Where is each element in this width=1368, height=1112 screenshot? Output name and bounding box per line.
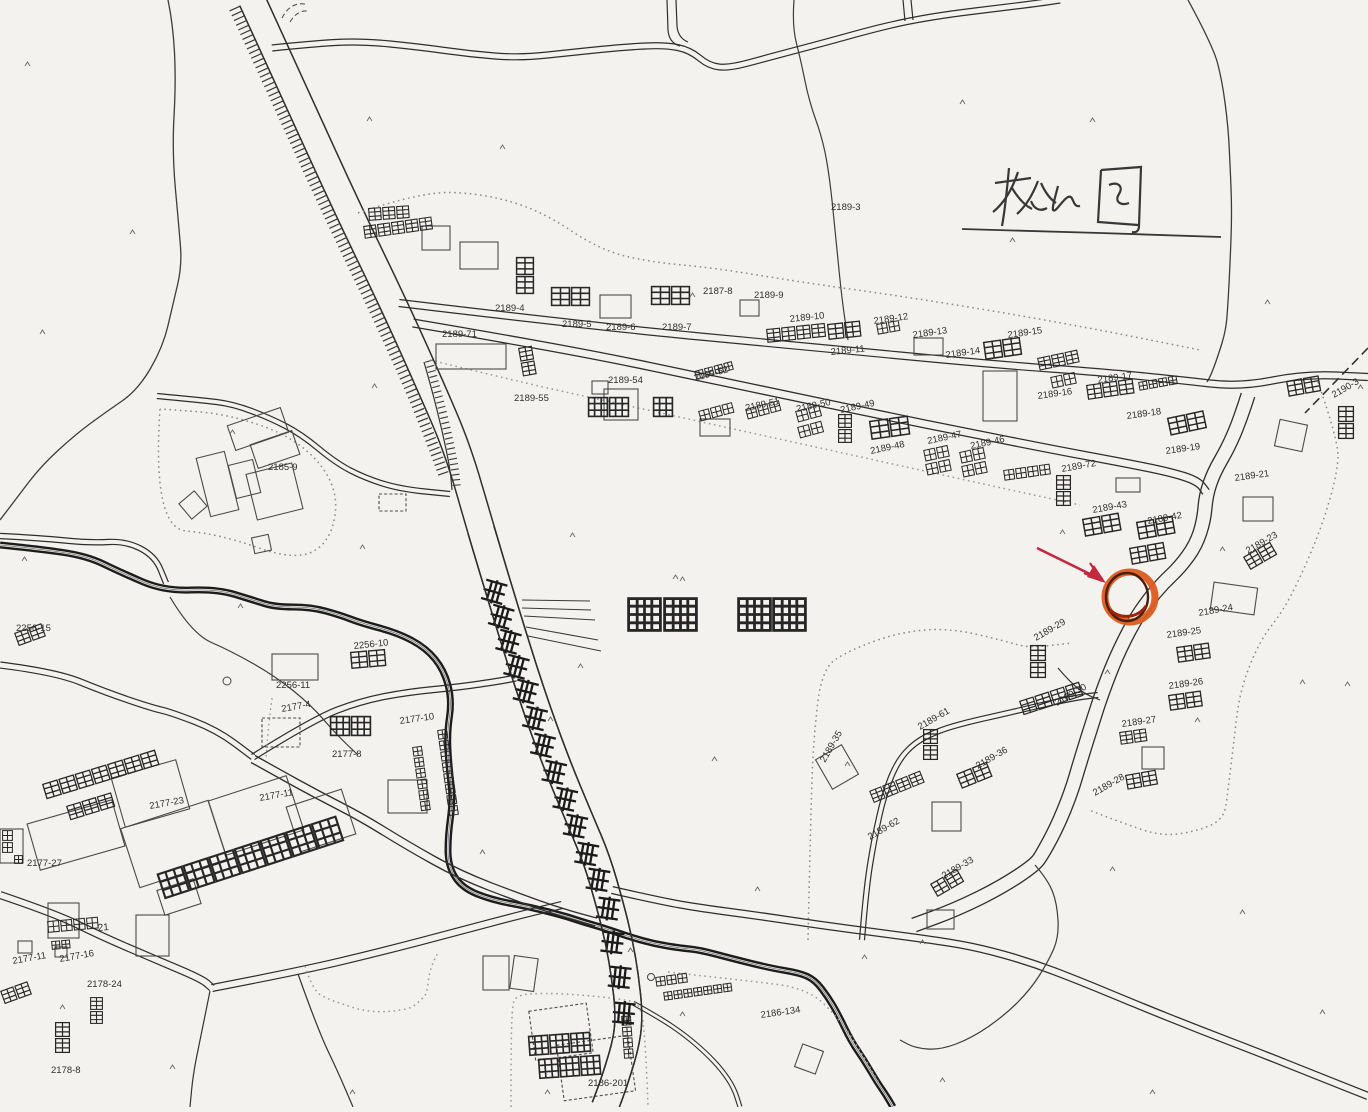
svg-text:2256-11: 2256-11 [276,680,310,691]
svg-text:2256-15: 2256-15 [16,623,51,634]
svg-text:2185-9: 2185-9 [268,462,298,473]
svg-text:2189-9: 2189-9 [754,290,784,301]
svg-text:21: 21 [97,922,109,934]
svg-text:2189-5: 2189-5 [562,319,592,330]
svg-text:2189-4: 2189-4 [495,303,525,314]
svg-text:2178-8: 2178-8 [51,1065,81,1076]
svg-text:2189-3: 2189-3 [831,202,861,213]
svg-text:2178-24: 2178-24 [87,979,122,990]
svg-text:2189-7: 2189-7 [662,322,692,333]
svg-text:2189-71: 2189-71 [442,329,477,340]
svg-text:2189-6: 2189-6 [606,322,636,333]
svg-text:2189-54: 2189-54 [608,375,643,386]
svg-text:2177-27: 2177-27 [27,858,62,869]
svg-text:2186-201: 2186-201 [588,1078,628,1089]
svg-text:2189-55: 2189-55 [514,393,549,404]
svg-text:2177-8: 2177-8 [332,749,362,760]
svg-text:2187-8: 2187-8 [703,286,733,297]
